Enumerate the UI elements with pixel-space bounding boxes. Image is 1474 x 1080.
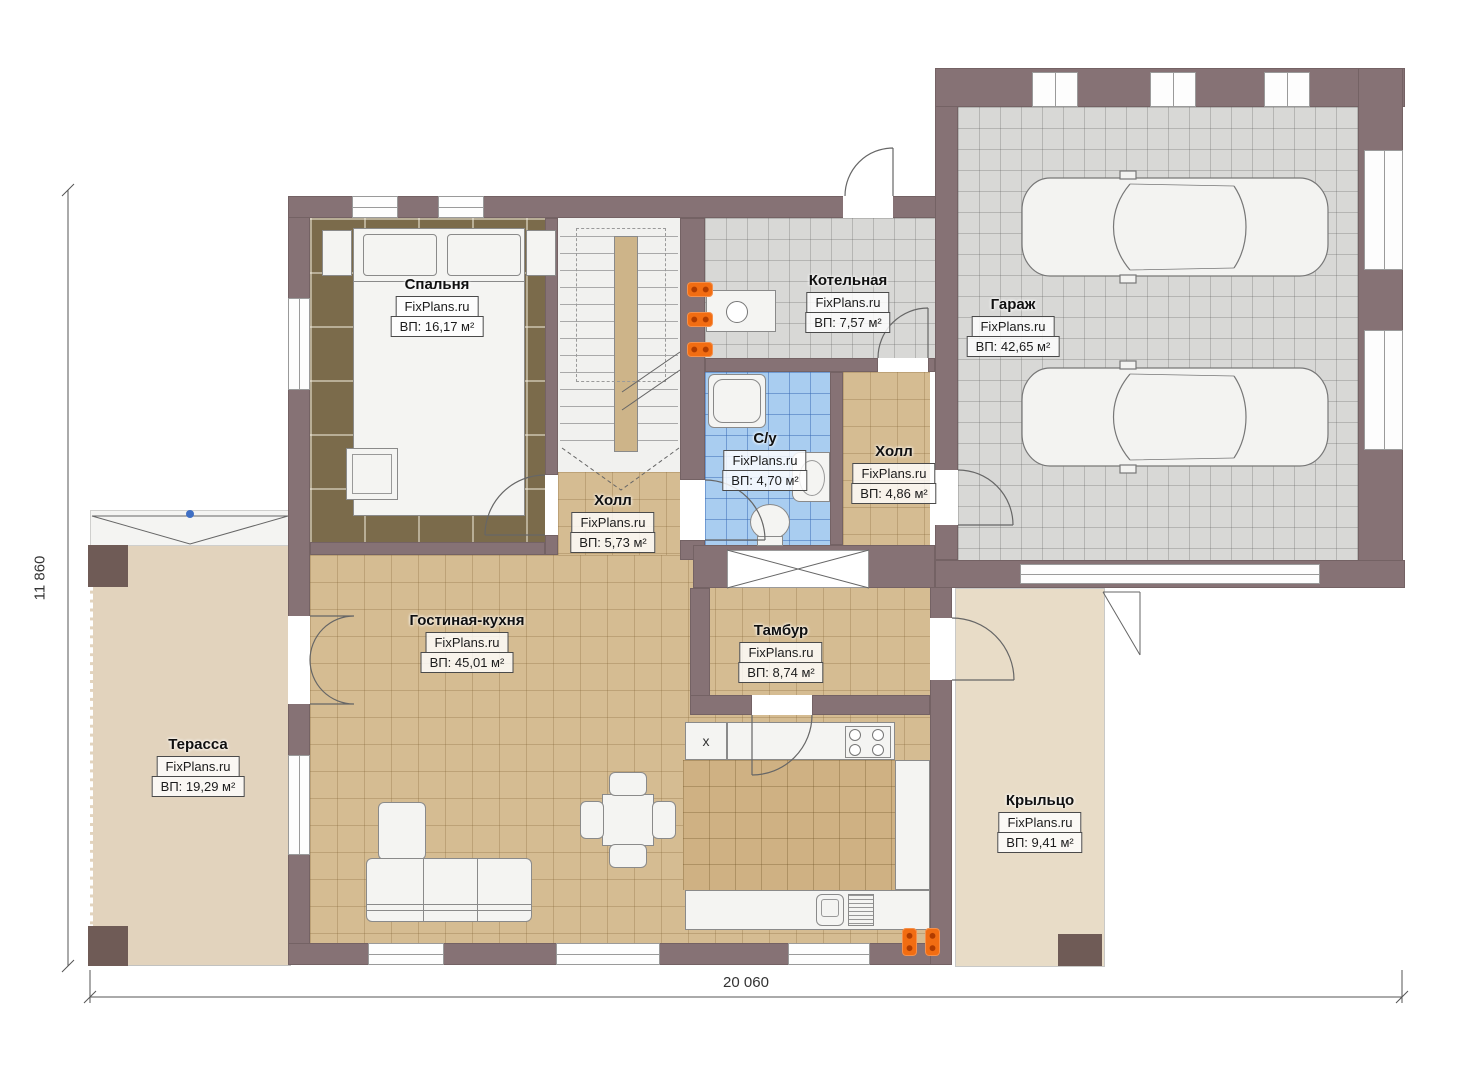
garage-hall-door-gap [935,470,958,525]
garage-window-top-3 [1264,72,1310,107]
label-bathroom: С/у FixPlans.ru ВП: 4,70 м² [722,430,807,491]
porch-floor [955,588,1105,967]
label-porch: Крыльцо FixPlans.ru ВП: 9,41 м² [997,792,1082,853]
radiator-kitchen-1 [902,928,917,956]
sofa-chaise [378,802,426,860]
wall-bath-hall [830,372,843,545]
label-terrace: Терасса FixPlans.ru ВП: 19,29 м² [152,736,245,797]
entrance-door-arc [845,148,893,196]
radiator-kitchen-2 [925,928,940,956]
toilet-bowl [750,504,790,540]
room-area: ВП: 16,17 м² [391,316,484,337]
room-name: С/у [753,430,776,447]
watermark: FixPlans.ru [739,642,822,663]
watermark: FixPlans.ru [425,632,508,653]
boiler-dial [726,301,748,323]
vestibule-door-gap [930,618,952,680]
garage-door-band [1020,564,1320,584]
dining-table [602,794,654,846]
garage-window-right-1 [1364,150,1403,270]
radiator-stairs-3 [687,342,713,357]
terrace-roof-band [90,510,290,546]
wall-garage-right [1358,68,1403,588]
dimension-height: 11 860 [32,556,49,601]
wall-vestibule-bottom-a [690,695,752,715]
dim-line-left [62,184,74,972]
watermark: FixPlans.ru [806,292,889,313]
radiator-stairs-1 [687,282,713,297]
bed-pillow-left [363,234,437,276]
kitchen-floor [683,760,895,890]
stove [845,726,891,758]
garage-window-top-1 [1032,72,1078,107]
kitchen-window-bottom [788,943,870,965]
room-area: ВП: 4,70 м² [722,470,807,491]
bath-door-gap [680,480,705,540]
wall-bedroom-bottom [310,542,545,555]
porch-post [1058,934,1102,966]
room-area: ВП: 19,29 м² [152,776,245,797]
dining-chair-left [580,801,604,839]
dimension-width: 20 060 [723,974,769,991]
room-name: Крыльцо [1006,792,1074,809]
dining-chair-right [652,801,676,839]
room-name: Спальня [405,276,470,293]
room-name: Холл [875,443,913,460]
dining-chair-top [609,772,647,796]
island-mark: x [703,733,710,749]
wall-boiler-bath-b [928,358,935,372]
label-living-kitchen: Гостиная-кухня FixPlans.ru ВП: 45,01 м² [410,612,525,673]
bedroom-window-left [288,298,310,390]
watermark: FixPlans.ru [852,463,935,484]
room-area: ВП: 45,01 м² [421,652,514,673]
label-bedroom: Спальня FixPlans.ru ВП: 16,17 м² [391,276,484,337]
terrace-door-gap [288,616,310,704]
room-area: ВП: 8,74 м² [738,662,823,683]
bed-pillow-right [447,234,521,276]
label-hall-right: Холл FixPlans.ru ВП: 4,86 м² [851,443,936,504]
dishwasher [848,894,874,926]
room-name: Терасса [168,736,227,753]
label-garage: Гараж FixPlans.ru ВП: 42,65 м² [967,296,1060,357]
wall-boiler-bath-a [705,358,878,372]
floor-plan: x [0,0,1474,1080]
room-name: Гостиная-кухня [410,612,525,629]
watermark: FixPlans.ru [156,756,239,777]
bedroom-side-table [346,448,398,500]
nightstand-left [322,230,352,276]
label-vestibule: Тамбур FixPlans.ru ВП: 8,74 м² [738,622,823,683]
nightstand-right [526,230,556,276]
kitchen-counter-right [895,760,930,890]
wall-bedroom-right-b [545,535,558,555]
terrace-post-top [88,545,128,587]
room-area: ВП: 5,73 м² [570,532,655,553]
sofa [366,858,532,922]
room-area: ВП: 7,57 м² [805,312,890,333]
bedroom-window-top-2 [438,196,484,218]
shower [708,374,766,428]
vestibule-kitchen-door-gap [752,695,812,715]
terrace-post-bottom [88,926,128,966]
dining-chair-bottom [609,844,647,868]
watermark: FixPlans.ru [395,296,478,317]
kitchen-island: x [685,722,727,760]
room-name: Тамбур [754,622,808,639]
living-window-bottom-1 [368,943,444,965]
entrance-door-gap-top [843,196,893,218]
threshold-ramp [727,550,869,588]
wall-vestibule-bottom-b [812,695,930,715]
room-area: ВП: 9,41 м² [997,832,1082,853]
room-area: ВП: 42,65 м² [967,336,1060,357]
label-boiler-room: Котельная FixPlans.ru ВП: 7,57 м² [805,272,890,333]
radiator-stairs-2 [687,312,713,327]
watermark: FixPlans.ru [723,450,806,471]
room-name: Гараж [991,296,1036,313]
watermark: FixPlans.ru [971,316,1054,337]
toilet-tank [757,536,783,546]
room-area: ВП: 4,86 м² [851,483,936,504]
porch-roof-lines [1103,592,1140,655]
garage-window-right-2 [1364,330,1403,450]
bedroom-window-top-1 [352,196,398,218]
living-window-left [288,755,310,855]
stairs-opening-outline [576,228,666,382]
watermark: FixPlans.ru [998,812,1081,833]
bedroom-door-gap [545,475,558,535]
kitchen-counter-bottom [685,890,930,930]
boiler-door-gap [878,358,928,372]
watermark: FixPlans.ru [571,512,654,533]
room-name: Котельная [809,272,888,289]
garage-window-top-2 [1150,72,1196,107]
kitchen-sink [816,894,844,926]
living-window-bottom-2 [556,943,660,965]
room-name: Холл [594,492,632,509]
label-hall-left: Холл FixPlans.ru ВП: 5,73 м² [570,492,655,553]
